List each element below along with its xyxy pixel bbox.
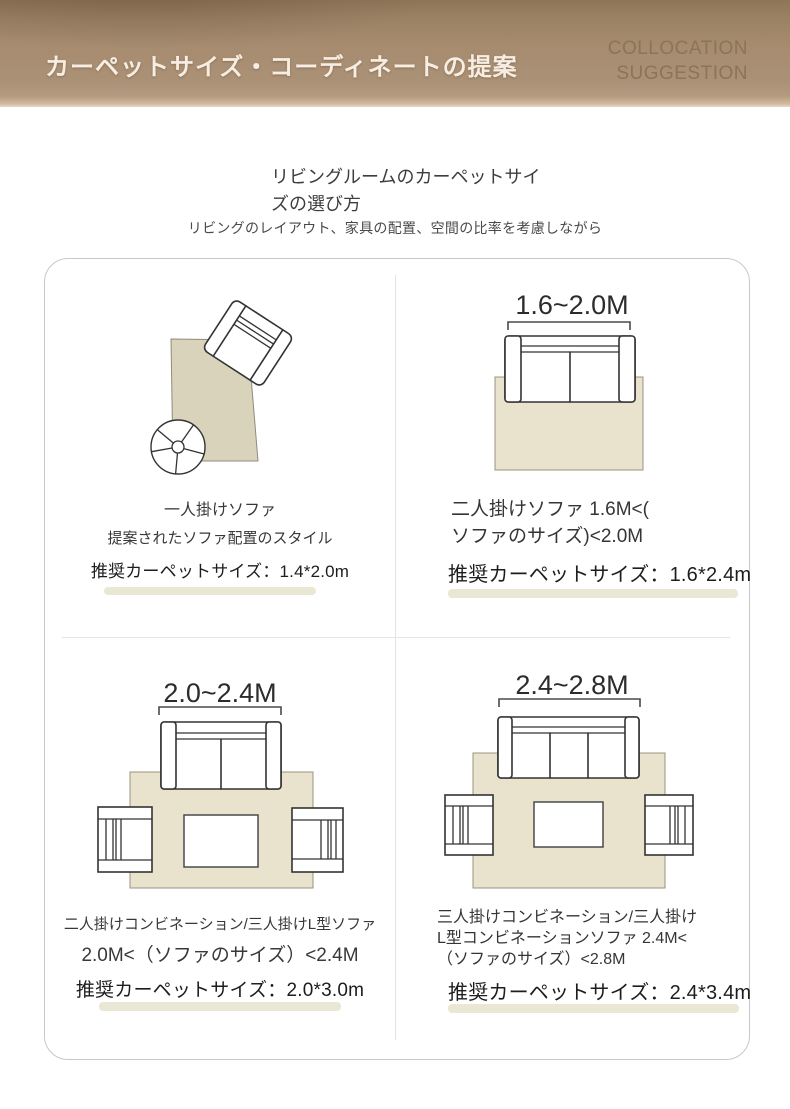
armchair-icon: [98, 807, 152, 872]
dimension-label: 2.4~2.8M: [396, 670, 748, 701]
collocation-line: COLLOCATION: [608, 38, 748, 59]
ball-icon: [151, 420, 205, 474]
suggestion-line: SUGGESTION: [616, 63, 748, 84]
caption-line: ソファのサイズ)<2.0M: [451, 523, 649, 550]
carpet-size-infographic: カーペットサイズ・コーディネートの提案 COLLOCATION SUGGESTI…: [0, 0, 790, 1109]
quadrant-caption: 提案されたソファ配置のスタイル: [44, 527, 396, 548]
coffee-table-icon: [534, 802, 603, 847]
caption-line: （ソファのサイズ）<2.8M: [437, 949, 697, 970]
quadrant-caption: 三人掛けコンビネーション/三人掛け L型コンビネーションソファ 2.4M< （ソ…: [437, 907, 697, 970]
sofa-icon: [505, 336, 635, 402]
recommended-size-label: 推奨カーペットサイズ：2.4*3.4m: [448, 976, 751, 1005]
armchair-icon: [292, 808, 343, 872]
caption-line: 三人掛けコンビネーション/三人掛け: [437, 907, 697, 928]
caption-line: 二人掛けソファ 1.6M<(: [451, 496, 649, 523]
recommended-size-label: 推奨カーペットサイズ：1.6*2.4m: [448, 558, 751, 587]
single-sofa-diagram: [150, 300, 310, 480]
three-seat-combination-diagram: [430, 680, 710, 895]
caption-line: L型コンビネーションソファ 2.4M<: [437, 928, 697, 949]
highlight-underline: [104, 587, 316, 595]
section-title-line1: リビングルームのカーペットサイ: [271, 164, 540, 191]
panel-divider-horizontal: [62, 637, 730, 638]
quadrant-caption: 二人掛けソファ 1.6M<( ソファのサイズ)<2.0M: [451, 496, 649, 550]
sofa-icon: [498, 717, 639, 778]
recommended-size-label: 推奨カーペットサイズ：2.0*3.0m: [44, 975, 396, 1002]
dimension-label: 2.0~2.4M: [44, 678, 396, 709]
quadrant-caption: 2.0M<（ソファのサイズ）<2.4M: [44, 940, 396, 967]
coffee-table-icon: [184, 815, 258, 867]
quadrant-caption: 一人掛けソファ: [44, 496, 396, 520]
dimension-label: 1.6~2.0M: [396, 290, 748, 321]
highlight-underline: [448, 589, 738, 598]
collocation-suggestion-label: COLLOCATION SUGGESTION: [608, 36, 748, 86]
section-subtitle: リビングのレイアウト、家具の配置、空間の比率を考慮しながら: [0, 218, 790, 238]
two-seat-combination-diagram: [90, 690, 350, 895]
header-title: カーペットサイズ・コーディネートの提案: [45, 47, 518, 82]
recommended-size-label: 推奨カーペットサイズ：1.4*2.0m: [44, 557, 396, 582]
header-banner: カーペットサイズ・コーディネートの提案 COLLOCATION SUGGESTI…: [0, 0, 790, 107]
two-seater-diagram: [490, 315, 655, 475]
highlight-underline: [448, 1004, 739, 1013]
quadrant-caption: 二人掛けコンビネーション/三人掛けL型ソファ: [44, 913, 396, 934]
highlight-underline: [99, 1002, 341, 1011]
measure-bracket-icon: [508, 322, 630, 330]
armchair-icon: [645, 795, 693, 855]
section-title-line2: ズの選び方: [271, 191, 540, 218]
section-title: リビングルームのカーペットサイ ズの選び方: [271, 164, 540, 218]
armchair-icon: [445, 795, 493, 855]
sofa-icon: [161, 722, 281, 789]
